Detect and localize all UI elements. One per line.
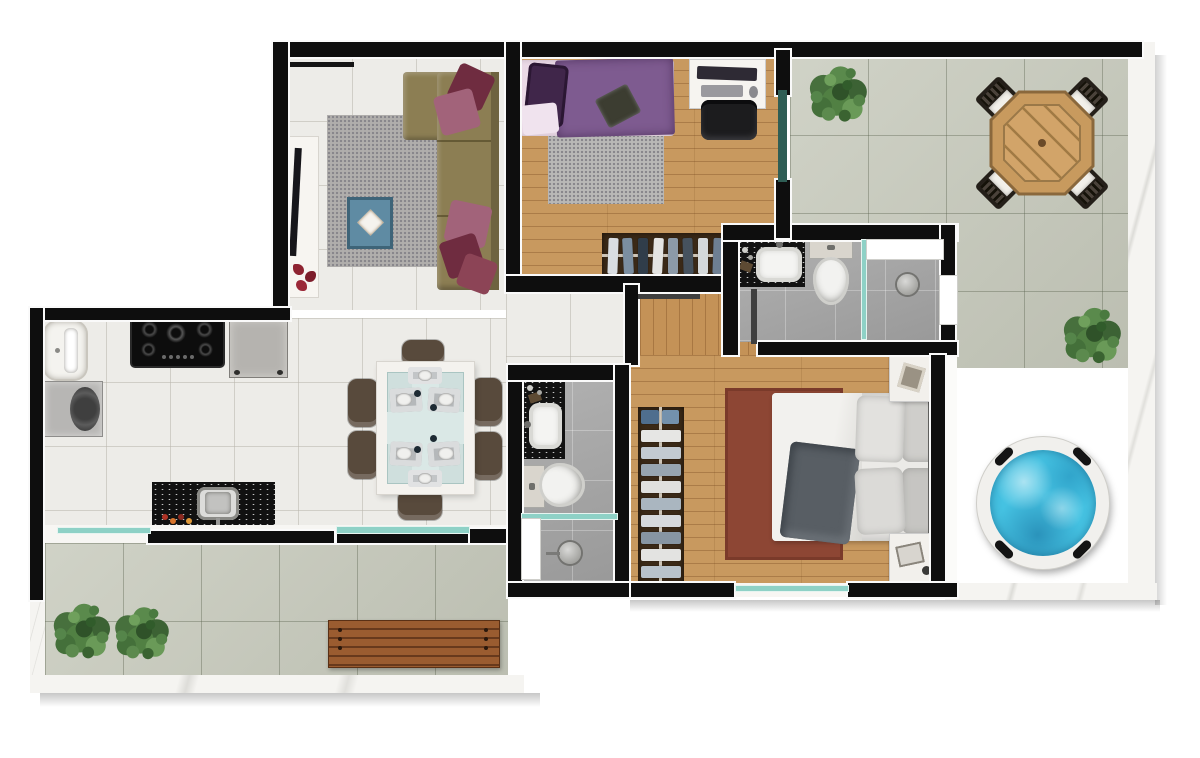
wall-segment <box>337 533 472 543</box>
plate <box>418 473 432 484</box>
wall-segment <box>148 531 334 543</box>
dining-chair <box>348 431 378 479</box>
storage-box <box>662 410 679 424</box>
hanging-clothes <box>641 430 681 442</box>
perfume <box>748 255 753 260</box>
sliding-door-glass <box>337 527 469 533</box>
bedroom1-rug <box>548 130 664 204</box>
shower-glass <box>862 240 866 339</box>
burner <box>196 321 213 338</box>
glassware <box>430 404 437 411</box>
dining-floor-patch <box>506 292 627 367</box>
open-door-leaf <box>751 289 757 344</box>
tub-drain <box>55 348 60 353</box>
spice-jar <box>170 518 176 524</box>
bench-bolt <box>338 637 342 641</box>
knob <box>169 355 173 359</box>
shower-niche <box>867 240 943 259</box>
bench-bolt <box>484 637 488 641</box>
red-decor <box>296 280 307 291</box>
washer-door <box>70 387 100 431</box>
spice-jar <box>186 518 192 524</box>
shower-arm <box>546 552 560 555</box>
floor-plan <box>0 0 1200 758</box>
bench-bolt <box>338 646 342 650</box>
plant <box>798 52 883 142</box>
sofa-backrest <box>491 72 499 290</box>
kitchen-cabinet <box>230 320 287 377</box>
open-door-leaf <box>638 294 700 299</box>
hanging-clothes <box>641 447 681 459</box>
dining-chair <box>472 432 502 480</box>
cabinet-handle <box>234 370 240 375</box>
keyboard <box>701 85 743 97</box>
hanging-clothes <box>638 238 648 274</box>
burner <box>198 342 213 357</box>
faucet <box>524 421 531 428</box>
glassware <box>430 435 437 442</box>
plant <box>98 596 190 676</box>
tub-basin <box>64 328 78 373</box>
wall-segment <box>615 365 629 597</box>
wall-segment <box>627 583 734 597</box>
drop-shadow <box>630 600 1160 612</box>
bed2-pillow <box>854 467 905 535</box>
shower-door <box>522 519 540 579</box>
hanging-clothes <box>641 498 681 510</box>
marble-border-deck-bottom <box>945 583 1157 600</box>
wall-segment <box>848 583 957 597</box>
bath1-sink <box>756 247 802 282</box>
deck-trim <box>945 355 957 583</box>
marble-border-terrace-bottom <box>30 675 524 693</box>
bench-bolt <box>338 628 342 632</box>
red-decor <box>293 264 304 275</box>
plate <box>418 370 432 381</box>
glassware <box>414 446 421 453</box>
bath2-sink <box>529 403 562 449</box>
drop-shadow <box>1155 55 1167 605</box>
knob <box>176 355 180 359</box>
spice-jar <box>178 514 184 520</box>
hanging-clothes <box>682 238 693 274</box>
wall-segment <box>508 365 629 380</box>
hanging-clothes <box>652 238 664 274</box>
plate <box>396 393 412 406</box>
shower-drain <box>897 274 918 295</box>
hanging-clothes <box>641 532 681 544</box>
wall-segment <box>506 42 520 282</box>
shower-head <box>559 542 581 564</box>
plate <box>438 447 454 460</box>
wall-segment <box>931 355 945 585</box>
cabinet-handle <box>277 370 283 375</box>
storage-box <box>641 410 659 424</box>
burner <box>141 321 158 338</box>
wall-segment <box>758 342 957 355</box>
wall-shelf <box>288 62 354 67</box>
hot-tub-water <box>990 450 1096 556</box>
knob <box>162 355 166 359</box>
island-sink-basin <box>205 492 231 514</box>
wall-segment <box>30 308 43 600</box>
sofa-seam <box>437 140 491 142</box>
hanging-clothes <box>641 515 681 527</box>
perfume <box>742 247 748 253</box>
knob <box>190 355 194 359</box>
plant <box>1052 296 1137 381</box>
hanging-clothes <box>607 238 618 274</box>
window-glass <box>58 528 150 533</box>
hanging-clothes <box>622 238 634 274</box>
drop-shadow <box>40 693 540 707</box>
rack-rail <box>602 254 729 257</box>
wood-bench <box>328 620 500 668</box>
office-chair <box>701 100 757 140</box>
table-glass-runner <box>387 412 464 444</box>
bed2-pillow <box>855 395 905 463</box>
window-recess <box>940 276 957 324</box>
faucet <box>776 241 783 248</box>
hanging-clothes <box>698 238 708 274</box>
perfume <box>537 390 542 395</box>
hanging-clothes <box>641 549 681 561</box>
flush-button <box>827 245 835 250</box>
wall-segment <box>776 180 790 238</box>
wall-segment <box>625 285 638 365</box>
wall-segment <box>275 42 1142 57</box>
wall-segment <box>508 583 629 597</box>
sliding-door-glass <box>736 586 848 591</box>
hanging-clothes <box>668 238 678 274</box>
wall-segment <box>30 308 290 320</box>
wall-segment <box>723 228 738 355</box>
plate <box>438 393 454 406</box>
burner <box>141 342 156 357</box>
burner <box>166 323 186 343</box>
flush-button <box>529 483 535 490</box>
hanging-clothes <box>712 238 723 274</box>
octagonal-table <box>987 88 1097 198</box>
monitor <box>697 66 757 81</box>
bench-bolt <box>484 646 488 650</box>
wall-segment <box>723 225 957 240</box>
wall-segment <box>506 276 722 292</box>
hanging-clothes <box>641 481 681 493</box>
wall-segment <box>508 365 522 597</box>
hanging-clothes <box>641 566 681 578</box>
mouse <box>749 86 758 98</box>
perfume <box>527 385 533 391</box>
dining-chair <box>398 490 442 520</box>
plate <box>396 447 412 460</box>
dining-chair <box>348 379 378 427</box>
dining-chair <box>472 378 502 426</box>
nightstand-decor <box>922 566 931 575</box>
spice-jar <box>162 514 168 520</box>
wall-segment <box>776 50 790 95</box>
bed2-throw <box>779 441 860 545</box>
hanging-clothes <box>641 464 681 476</box>
knob <box>183 355 187 359</box>
wall-segment <box>273 42 288 314</box>
terrace-door-glass <box>778 90 787 182</box>
bed1-sheet-fold <box>521 102 560 136</box>
bench-bolt <box>484 628 488 632</box>
glassware <box>414 390 421 397</box>
